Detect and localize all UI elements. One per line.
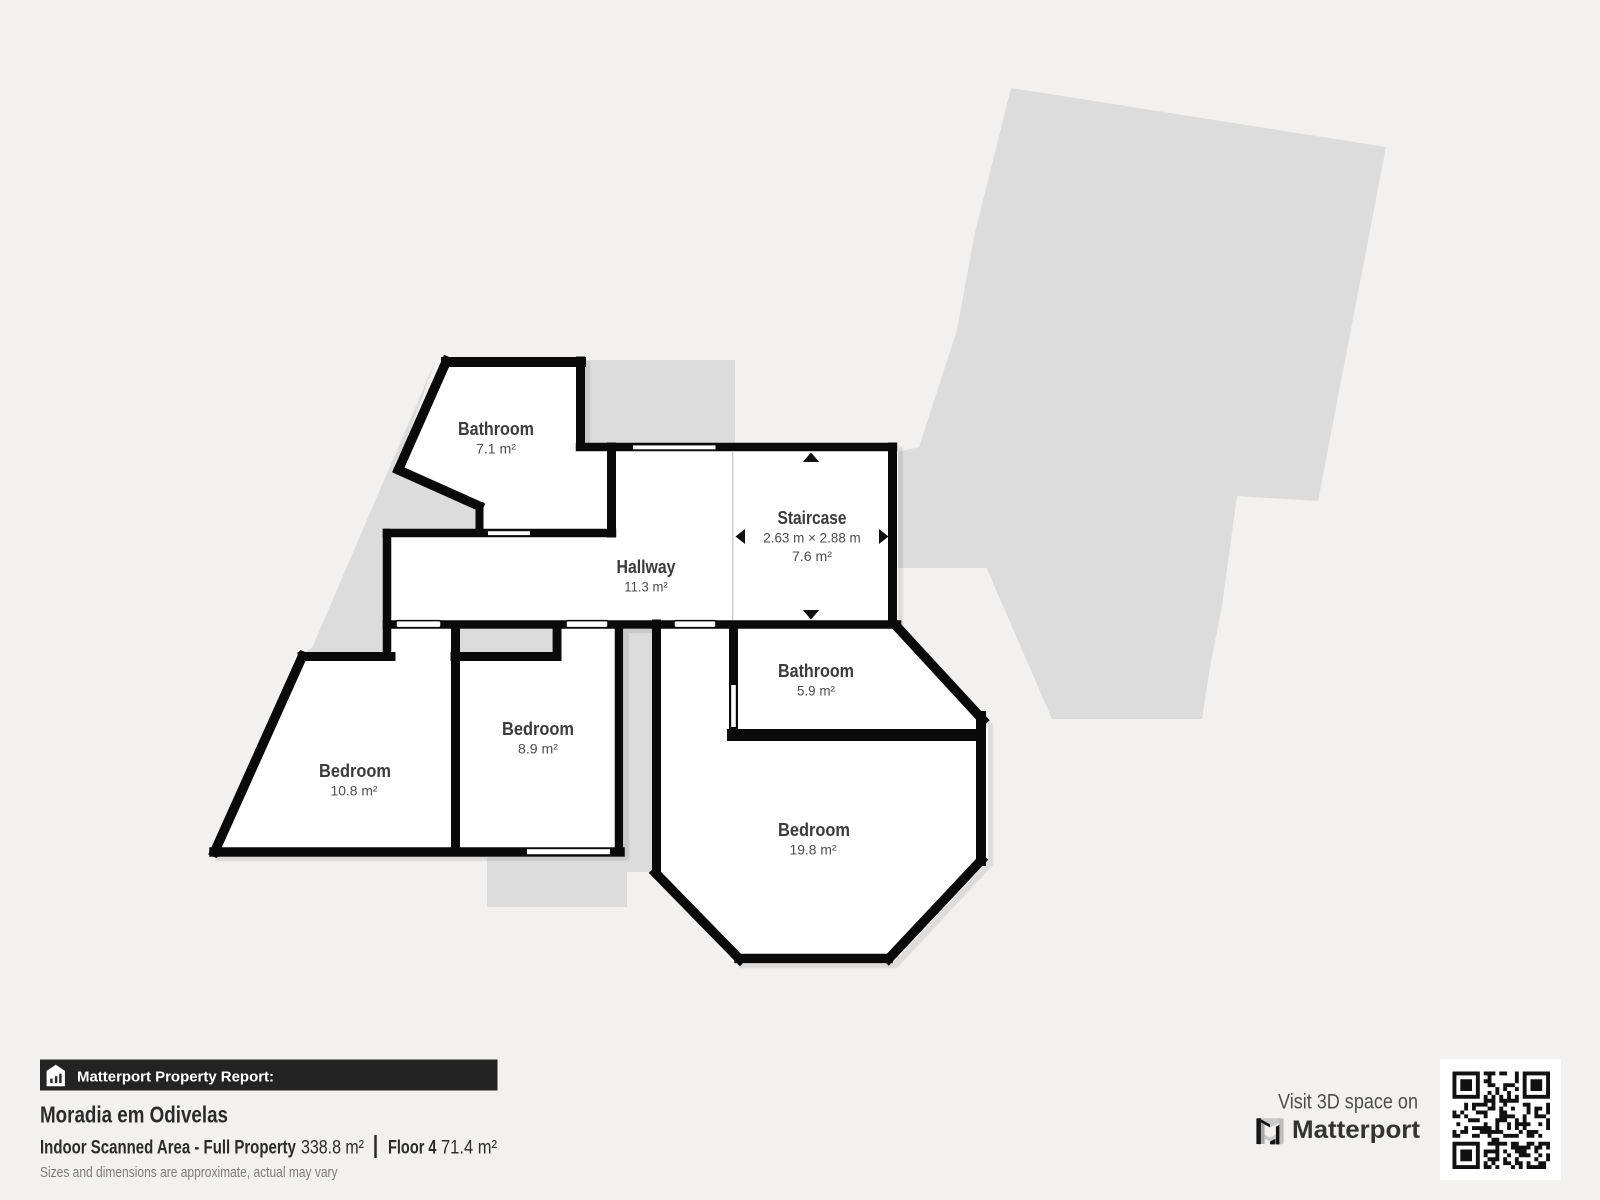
svg-text:71.4 m²: 71.4 m² xyxy=(441,1138,497,1159)
svg-text:Bedroom: Bedroom xyxy=(778,819,850,840)
svg-text:Hallway: Hallway xyxy=(617,556,677,577)
svg-text:Sizes and dimensions are appro: Sizes and dimensions are approximate, ac… xyxy=(40,1164,338,1181)
svg-text:Visit 3D space on: Visit 3D space on xyxy=(1278,1091,1418,1114)
svg-text:19.8 m²: 19.8 m² xyxy=(790,842,837,858)
svg-text:Bedroom: Bedroom xyxy=(319,760,391,781)
svg-text:10.8 m²: 10.8 m² xyxy=(331,783,378,799)
svg-text:8.9 m²: 8.9 m² xyxy=(518,741,558,757)
svg-text:Bathroom: Bathroom xyxy=(458,418,534,439)
svg-text:Matterport: Matterport xyxy=(1292,1116,1421,1144)
svg-text:Floor 4: Floor 4 xyxy=(388,1138,437,1159)
svg-text:5.9 m²: 5.9 m² xyxy=(797,683,835,699)
svg-text:Matterport Property Report:: Matterport Property Report: xyxy=(77,1069,274,1086)
svg-text:7.1 m²: 7.1 m² xyxy=(476,441,516,457)
svg-text:Moradia em Odivelas: Moradia em Odivelas xyxy=(40,1102,228,1128)
svg-text:338.8 m²: 338.8 m² xyxy=(301,1138,364,1159)
svg-text:2.63 m × 2.88 m: 2.63 m × 2.88 m xyxy=(763,530,861,546)
svg-text:Bedroom: Bedroom xyxy=(502,718,574,739)
svg-text:Staircase: Staircase xyxy=(778,507,847,528)
svg-text:Indoor Scanned Area - Full Pro: Indoor Scanned Area - Full Property xyxy=(40,1138,296,1159)
svg-text:Bathroom: Bathroom xyxy=(778,660,854,681)
svg-text:11.3 m²: 11.3 m² xyxy=(624,579,668,595)
svg-text:7.6 m²: 7.6 m² xyxy=(792,548,832,564)
